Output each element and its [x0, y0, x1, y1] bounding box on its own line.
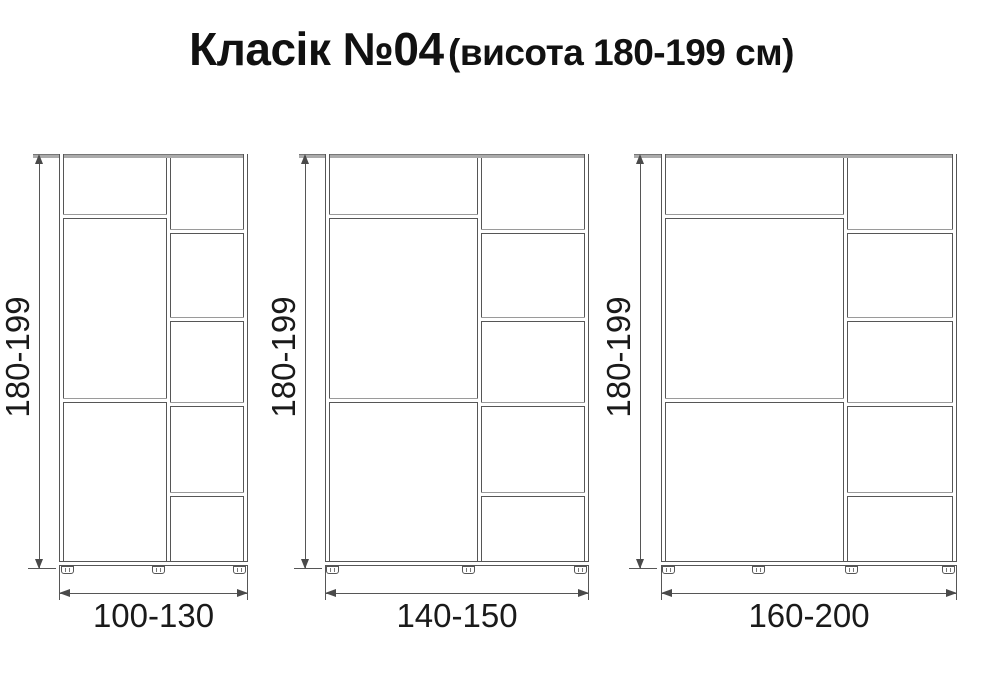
w2-width-arrow-right	[578, 589, 589, 597]
w2-foot-2	[462, 566, 475, 574]
w1-right-side-panel	[243, 154, 248, 566]
w3-right-section-shelf-4	[847, 492, 953, 497]
w1-right-section-shelf-2	[170, 317, 244, 322]
w2-right-section-shelf-2	[481, 317, 585, 322]
w2-bottom-panel	[325, 561, 589, 566]
w3-right-section-shelf-2	[847, 317, 953, 322]
title-height-range: (висота 180-199 см)	[448, 32, 794, 73]
w2-right-section-shelf-3	[481, 402, 585, 407]
w2-height-arrow-top	[301, 154, 309, 164]
w2-right-side-panel	[584, 154, 589, 566]
w3-height-dimension-line	[640, 156, 641, 568]
w3-foot-2	[752, 566, 765, 574]
height-dimension-label: 180-199	[600, 287, 638, 427]
w3-foot-1	[662, 566, 675, 574]
width-dimension-label: 100-130	[59, 597, 248, 635]
w1-width-dimension-line	[59, 593, 248, 594]
w2-foot-3	[574, 566, 587, 574]
w3-top-panel	[634, 154, 957, 158]
height-dimension-label: 180-199	[0, 287, 37, 427]
w3-left-section-shelf-1	[665, 214, 844, 219]
w1-right-section-shelf-4	[170, 492, 244, 497]
w1-height-dimension-line	[39, 156, 40, 568]
w2-foot-1	[326, 566, 339, 574]
w3-width-dimension-line	[661, 593, 957, 594]
w2-top-panel	[299, 154, 589, 158]
w1-foot-2	[152, 566, 165, 574]
w2-left-section-shelf-2	[329, 398, 478, 403]
w3-foot-4	[942, 566, 955, 574]
w1-height-extension-tick	[28, 568, 56, 569]
w2-right-section-shelf-4	[481, 492, 585, 497]
w1-right-section-shelf-1	[170, 229, 244, 234]
width-dimension-label: 140-150	[325, 597, 589, 635]
w3-right-side-panel	[952, 154, 957, 566]
w3-height-arrow-top	[636, 154, 644, 164]
title-model-name: Класік №04	[189, 23, 444, 75]
w3-width-arrow-left	[661, 589, 672, 597]
diagram-title: Класік №04 (висота 180-199 см)	[0, 22, 983, 76]
w3-right-section-shelf-1	[847, 229, 953, 234]
width-dimension-label: 160-200	[661, 597, 957, 635]
w1-right-section-shelf-3	[170, 402, 244, 407]
w1-width-arrow-right	[237, 589, 248, 597]
w3-bottom-panel	[661, 561, 957, 566]
w2-width-arrow-left	[325, 589, 336, 597]
w2-height-extension-tick	[294, 568, 322, 569]
w1-left-section-shelf-1	[63, 214, 167, 219]
w2-left-section-shelf-1	[329, 214, 478, 219]
w3-height-extension-tick	[629, 568, 657, 569]
w1-foot-1	[61, 566, 74, 574]
w3-foot-3	[845, 566, 858, 574]
w1-width-arrow-left	[59, 589, 70, 597]
w1-left-section-shelf-2	[63, 398, 167, 403]
w1-top-panel	[33, 154, 248, 158]
wardrobe-dimension-diagram: Класік №04 (висота 180-199 см) 180-199 1…	[0, 0, 983, 700]
height-dimension-label: 180-199	[265, 287, 303, 427]
w2-width-dimension-line	[325, 593, 589, 594]
w2-right-section-shelf-1	[481, 229, 585, 234]
w2-height-dimension-line	[305, 156, 306, 568]
w3-right-section-shelf-3	[847, 402, 953, 407]
w1-foot-3	[233, 566, 246, 574]
w1-height-arrow-top	[35, 154, 43, 164]
w3-width-arrow-right	[946, 589, 957, 597]
w3-left-section-shelf-2	[665, 398, 844, 403]
